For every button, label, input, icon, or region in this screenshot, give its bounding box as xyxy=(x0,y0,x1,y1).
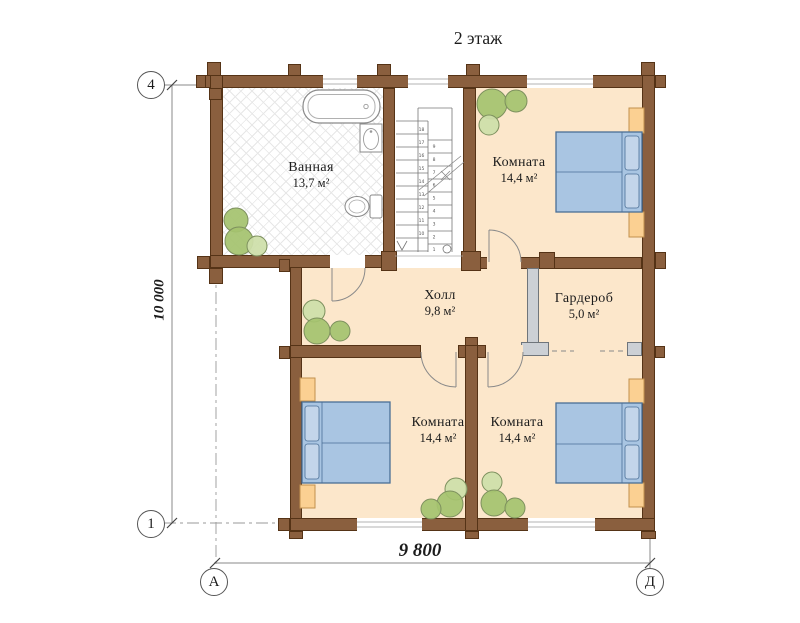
axis-marker-1: 1 xyxy=(137,510,165,538)
bathtub-icon xyxy=(303,90,380,123)
svg-text:16: 16 xyxy=(419,153,425,159)
svg-text:15: 15 xyxy=(419,166,425,172)
room-name: Комната xyxy=(491,415,544,431)
svg-text:6: 6 xyxy=(433,183,436,189)
room-label-top-right: Комната 14,4 м² xyxy=(493,155,546,186)
room-area: 14,4 м² xyxy=(491,431,544,446)
svg-text:18: 18 xyxy=(419,127,425,133)
plant-icon xyxy=(481,472,525,518)
svg-text:17: 17 xyxy=(419,140,425,146)
plant-icon xyxy=(303,300,350,344)
svg-text:12: 12 xyxy=(419,205,425,211)
dimension-vertical: 10 000 xyxy=(152,279,169,320)
room-area: 13,7 м² xyxy=(288,176,334,191)
nightstand-icon xyxy=(629,108,644,133)
room-name: Холл xyxy=(424,288,456,304)
nightstand-icon xyxy=(300,485,315,508)
svg-text:4: 4 xyxy=(433,209,436,215)
door-swing xyxy=(332,268,365,301)
svg-text:13: 13 xyxy=(419,192,425,198)
double-bed-icon xyxy=(556,403,642,483)
staircase-step-numbers: 181716151413121110987654321 xyxy=(419,127,436,253)
svg-text:14: 14 xyxy=(419,179,425,185)
room-name: Ванная xyxy=(288,160,334,176)
toilet-icon xyxy=(345,195,382,218)
door-swing xyxy=(488,352,523,387)
room-label-wardrobe: Гардероб 5,0 м² xyxy=(555,291,613,322)
room-area: 14,4 м² xyxy=(493,171,546,186)
room-label-bathroom: Ванная 13,7 м² xyxy=(288,160,334,191)
sink-icon xyxy=(360,124,382,152)
room-name: Комната xyxy=(412,415,465,431)
svg-text:2: 2 xyxy=(433,234,436,240)
nightstand-icon xyxy=(629,212,644,237)
floor-plan-canvas: 181716151413121110987654321 xyxy=(0,0,800,623)
nightstand-icon xyxy=(629,379,644,403)
axis-marker-D: Д xyxy=(636,568,664,596)
room-label-bottom-right: Комната 14,4 м² xyxy=(491,415,544,446)
dimension-horizontal: 9 800 xyxy=(399,540,442,562)
plant-icon xyxy=(224,208,267,256)
axis-marker-A: А xyxy=(200,568,228,596)
room-label-hall: Холл 9,8 м² xyxy=(424,288,456,319)
room-name: Комната xyxy=(493,155,546,171)
door-swing xyxy=(489,230,521,262)
svg-text:11: 11 xyxy=(419,218,425,224)
double-bed-icon xyxy=(556,132,642,212)
room-area: 14,4 м² xyxy=(412,431,465,446)
double-bed-icon xyxy=(302,402,390,483)
room-area: 5,0 м² xyxy=(555,307,613,322)
axis-marker-4: 4 xyxy=(137,71,165,99)
door-swing xyxy=(421,352,456,387)
room-label-bottom-left: Комната 14,4 м² xyxy=(412,415,465,446)
svg-text:1: 1 xyxy=(433,247,436,253)
plant-icon xyxy=(477,89,527,135)
room-area: 9,8 м² xyxy=(424,304,456,319)
plan-symbols: 181716151413121110987654321 xyxy=(0,0,800,623)
svg-text:3: 3 xyxy=(433,221,436,227)
nightstand-icon xyxy=(300,378,315,401)
svg-text:5: 5 xyxy=(433,196,436,202)
svg-text:9: 9 xyxy=(433,144,436,150)
svg-text:7: 7 xyxy=(433,170,436,176)
room-name: Гардероб xyxy=(555,291,613,307)
svg-text:10: 10 xyxy=(419,231,425,237)
page-title: 2 этаж xyxy=(454,28,502,49)
plant-icon xyxy=(421,478,467,519)
nightstand-icon xyxy=(629,483,644,507)
staircase xyxy=(395,108,464,256)
svg-text:8: 8 xyxy=(433,157,436,163)
